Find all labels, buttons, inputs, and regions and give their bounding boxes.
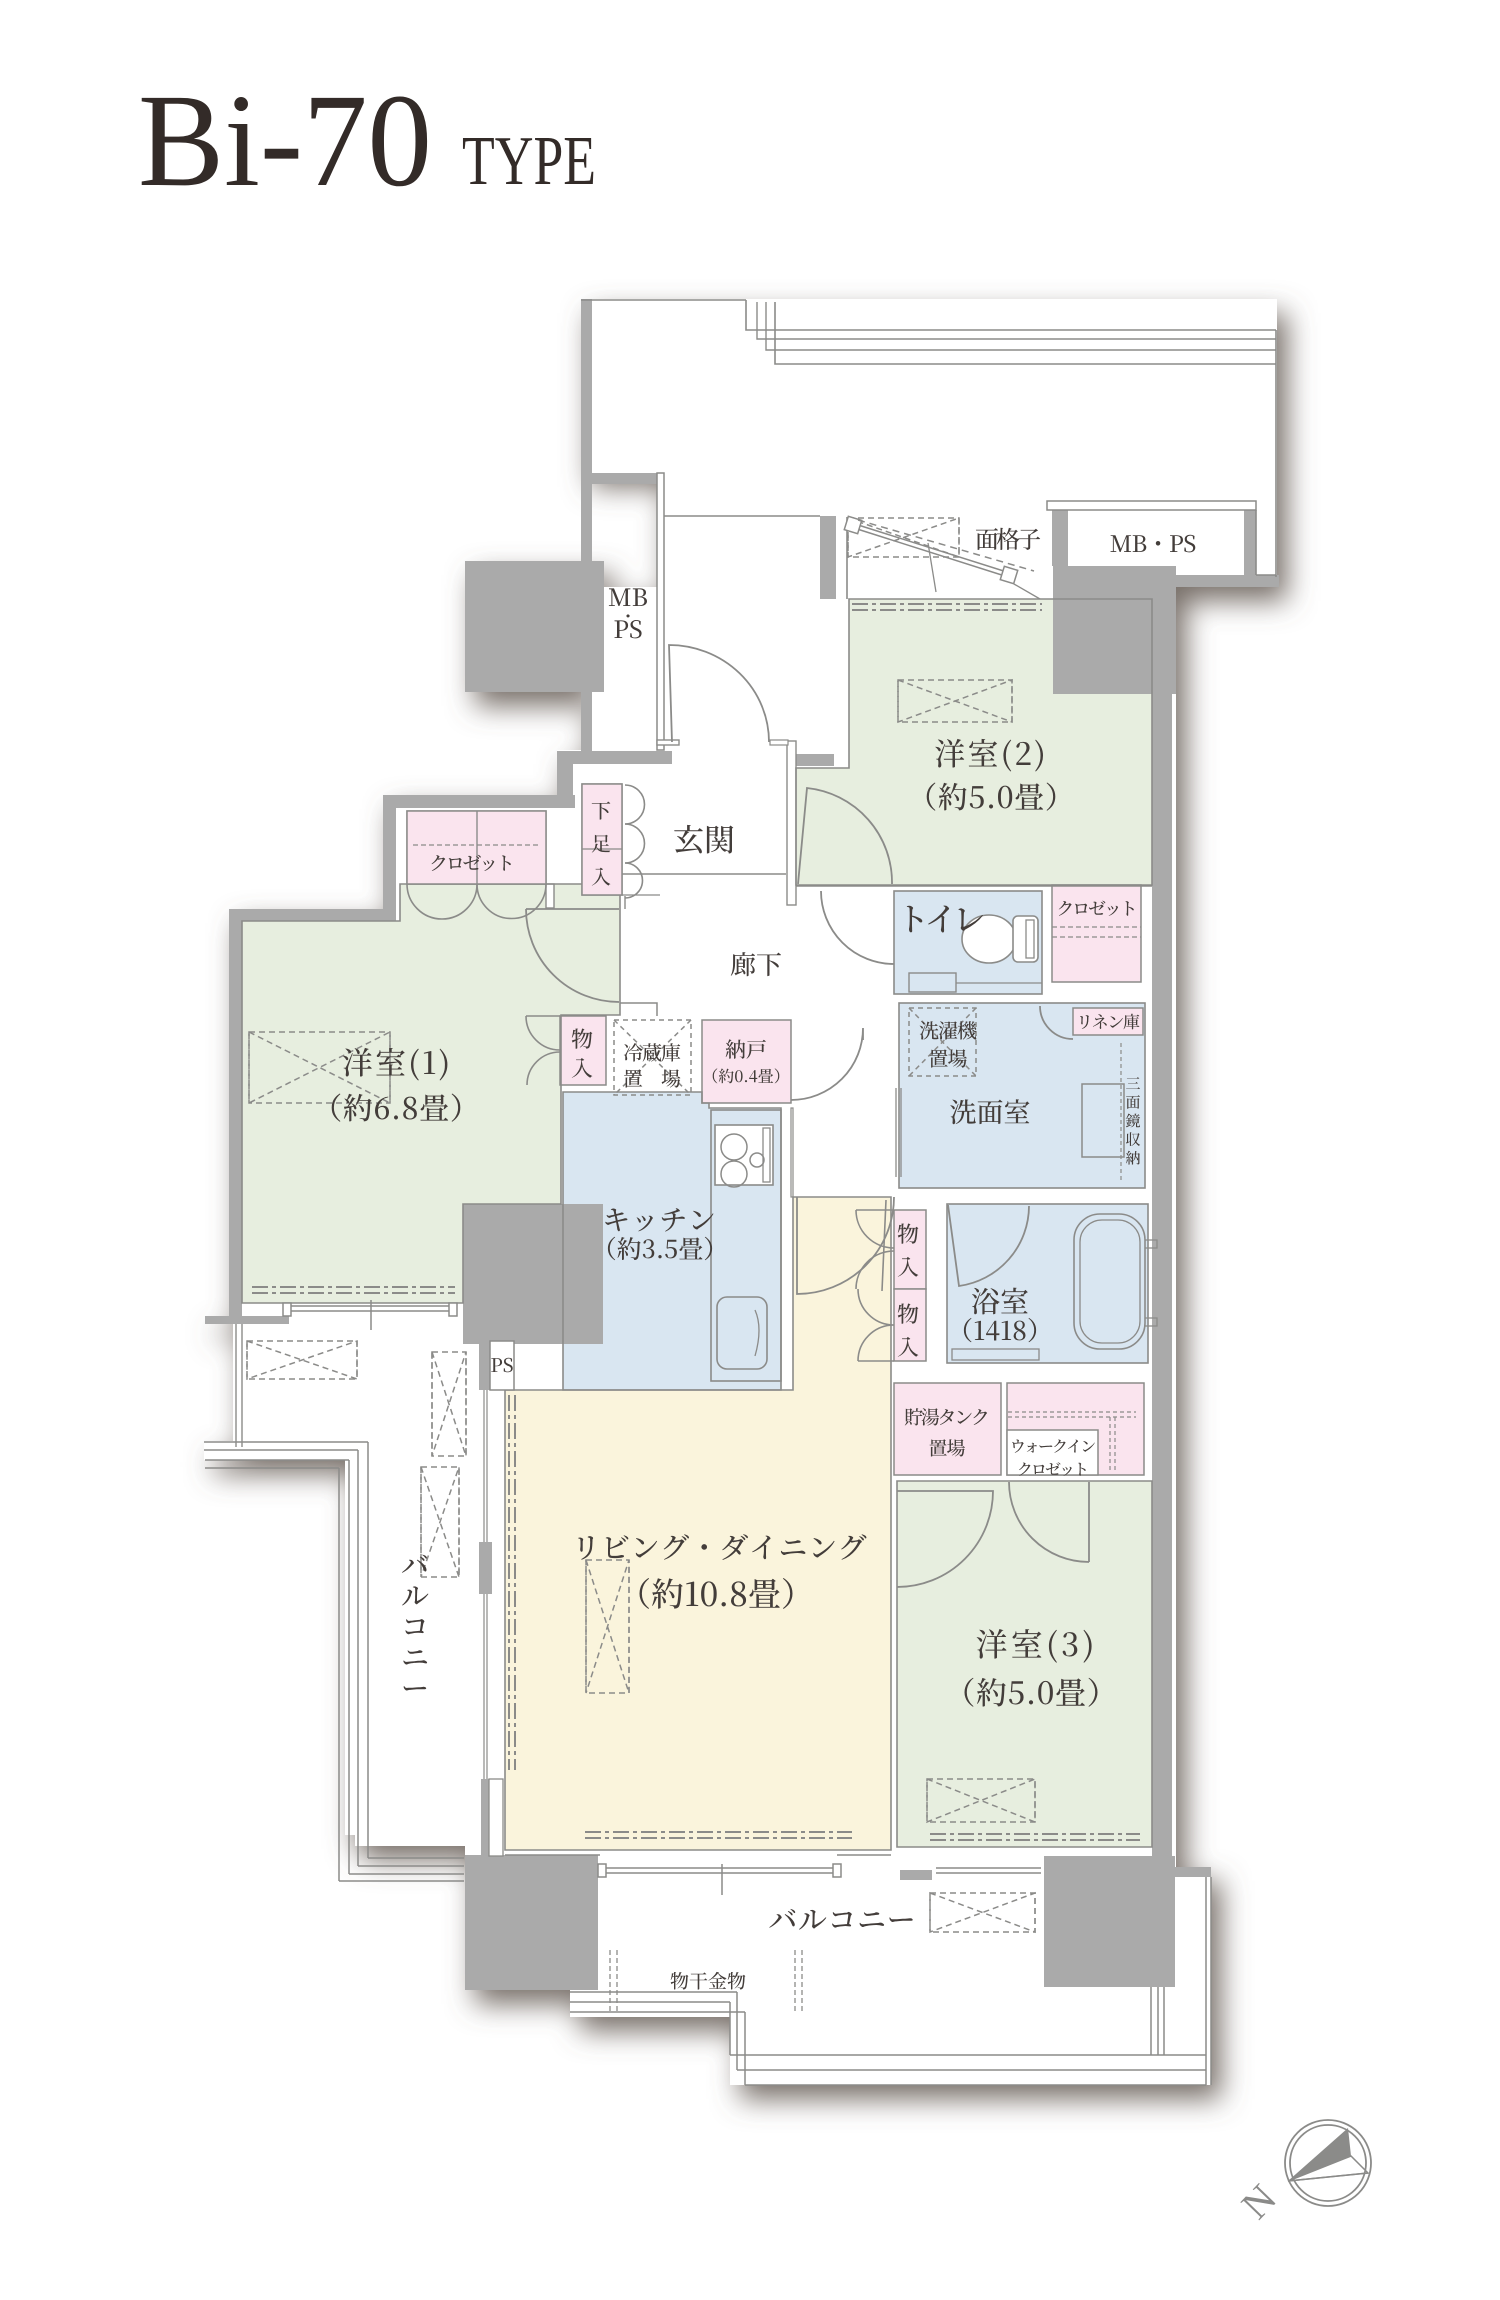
svg-text:TYPE: TYPE [462, 123, 596, 200]
svg-text:Bi-70: Bi-70 [138, 66, 432, 214]
